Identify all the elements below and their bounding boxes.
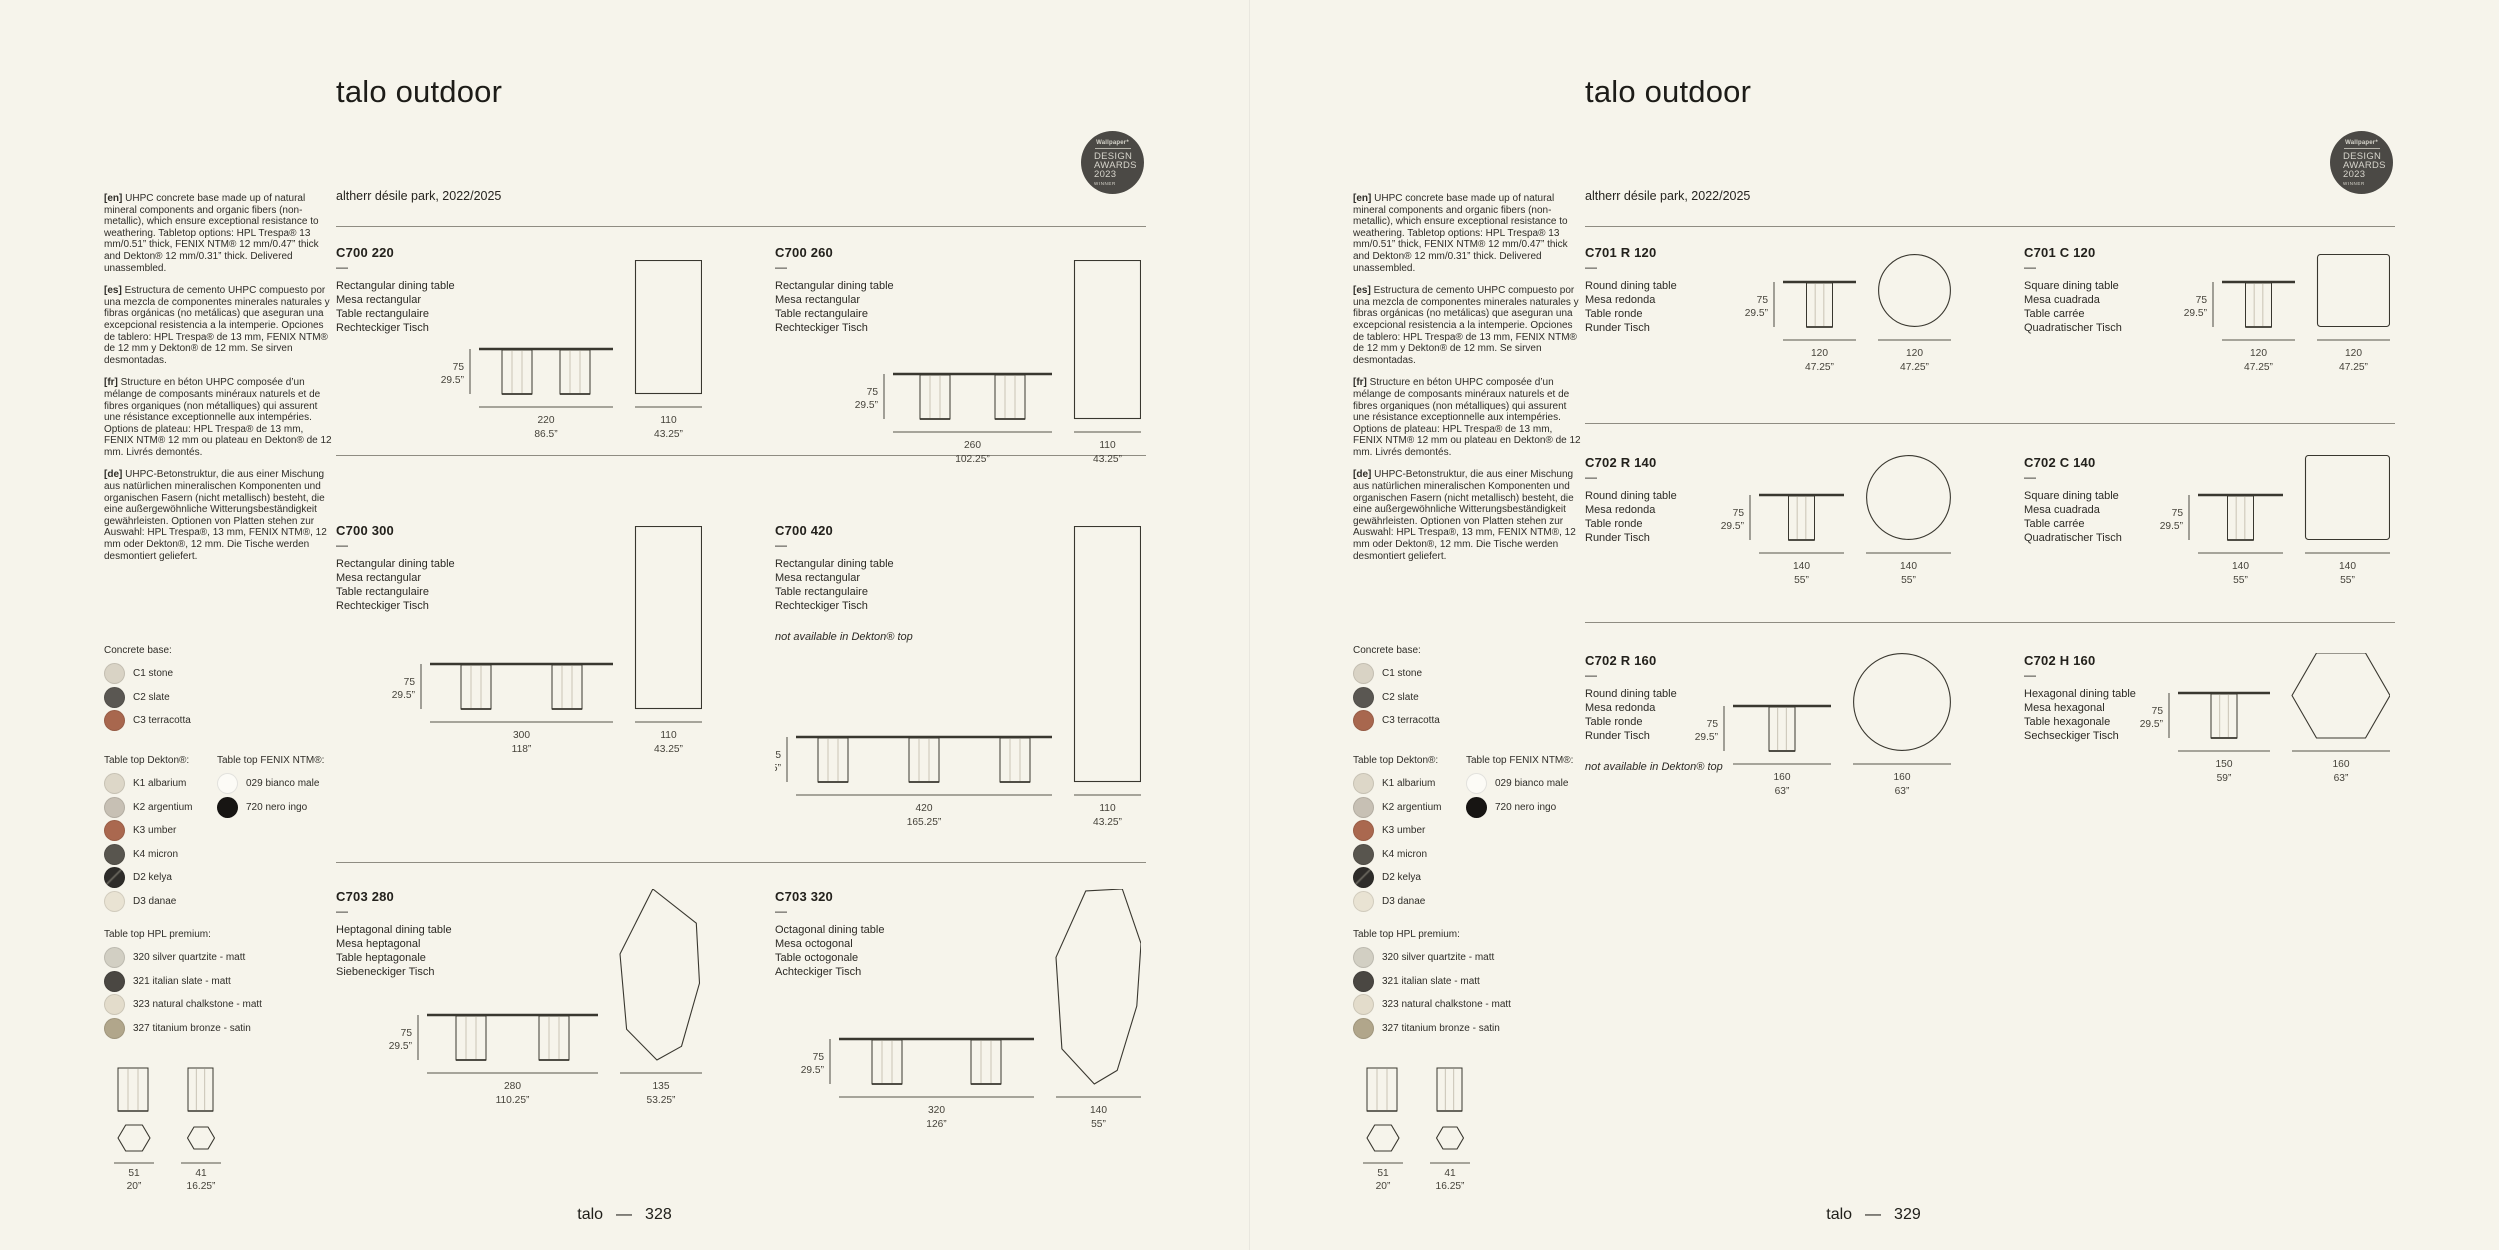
product-diagram: 7529.5”16063”16063” [1585, 653, 1951, 801]
dimension-label: 120 [2250, 348, 2267, 359]
footer-dash: — [1865, 1206, 1881, 1223]
product-diagram-wrap: 7529.5”12047.25”12047.25” [2024, 254, 2390, 382]
product-diagram: 7529.5”15059”16063” [2024, 653, 2390, 788]
product-diagram: 7529.5”14055”14055” [2024, 455, 2390, 590]
dimension-label: 280 [504, 1081, 521, 1092]
dimension-label: 220 [538, 415, 555, 426]
dimension-label: 102.25” [955, 454, 990, 465]
dimension-label: 260 [964, 440, 981, 451]
dimension-label: 29.5” [389, 1041, 413, 1052]
dimension-label: 63” [1895, 786, 1910, 797]
dimension-label: 110.25” [496, 1095, 530, 1106]
dimension-label: 150 [2216, 759, 2233, 770]
dimension-label: 29.5” [855, 400, 879, 411]
dimension-label: 43.25” [1093, 454, 1122, 465]
dimension-label: 47.25” [1805, 362, 1834, 373]
product-diagram: 7529.5”12047.25”12047.25” [1585, 254, 1951, 377]
dimension-label: 120 [2345, 348, 2362, 359]
product-diagram-wrap: 7529.5”14055”14055” [2024, 455, 2390, 595]
dimension-label: 86.5” [534, 429, 558, 440]
row-separator-line [336, 862, 1146, 863]
dimension-label: 29.5” [392, 690, 416, 701]
dimension-label: 47.25” [2339, 362, 2368, 373]
dimension-label: 29.5” [441, 375, 465, 386]
dimension-label: 55” [1091, 1119, 1106, 1130]
product-block: C703 320—Octagonal dining tableMesa octo… [775, 889, 1147, 980]
dimension-label: 120 [1811, 348, 1828, 359]
product-diagram-wrap: 7529.5”300118”11043.25” [336, 526, 702, 764]
product-diagram: 7529.5”260102.25”11043.25” [775, 260, 1141, 469]
dimension-label: 140 [2339, 561, 2356, 572]
dimension-label: 63” [2334, 773, 2349, 784]
dimension-label: 420 [916, 803, 933, 814]
dimension-label: 59” [2217, 773, 2232, 784]
page-footer: talo—329 [1249, 1206, 2498, 1224]
dimension-label: 110 [1099, 440, 1116, 451]
dimension-label: 55” [1794, 575, 1809, 586]
product-diagram: 7529.5”420165.25”11043.25” [775, 526, 1141, 832]
dimension-label: 29.5” [1721, 521, 1745, 532]
dimension-label: 75 [867, 387, 879, 398]
row-separator-line [1585, 622, 2395, 623]
dimension-label: 29.5” [2184, 308, 2208, 319]
products-area: C701 R 120—Round dining tableMesa redond… [1249, 0, 2498, 1250]
product-diagram-wrap: 7529.5”12047.25”12047.25” [1585, 254, 1951, 382]
product-diagram-wrap: 7529.5”420165.25”11043.25” [775, 526, 1141, 837]
dimension-label: 55” [2340, 575, 2355, 586]
dimension-label: 29.5” [2160, 521, 2184, 532]
product-diagram: 7529.5”320126”14055” [775, 889, 1141, 1134]
dimension-label: 75 [1733, 508, 1745, 519]
row-separator-line [1585, 423, 2395, 424]
product-diagram: 7529.5”300118”11043.25” [336, 526, 702, 759]
dimension-label: 160 [1774, 772, 1791, 783]
catalog-spread: talo outdoor Wallpaper* DESIGN AWARDS 20… [0, 0, 2499, 1250]
product-block: C701 C 120—Square dining tableMesa cuadr… [2024, 245, 2396, 336]
dimension-label: 43.25” [654, 744, 683, 755]
dimension-label: 160 [2333, 759, 2350, 770]
footer-page-number: 329 [1894, 1206, 1921, 1223]
products-area: C700 220—Rectangular dining tableMesa re… [0, 0, 1249, 1250]
dimension-label: 29.5” [1745, 308, 1769, 319]
product-block: C702 C 140—Square dining tableMesa cuadr… [2024, 455, 2396, 546]
dimension-label: 75 [1707, 719, 1719, 730]
product-block: C702 R 140—Round dining tableMesa redond… [1585, 455, 1957, 546]
product-diagram-wrap: 7529.5”260102.25”11043.25” [775, 260, 1141, 474]
dimension-label: 75 [775, 750, 781, 761]
dimension-label: 320 [928, 1105, 945, 1116]
dimension-label: 75 [2196, 295, 2208, 306]
dimension-label: 47.25” [1900, 362, 1929, 373]
dimension-label: 75 [453, 362, 465, 373]
dimension-label: 300 [513, 730, 530, 741]
dimension-label: 110 [660, 415, 677, 426]
dimension-label: 75 [813, 1052, 825, 1063]
dimension-label: 140 [1090, 1105, 1107, 1116]
dimension-label: 29.5” [1695, 732, 1719, 743]
dimension-label: 55” [1901, 575, 1916, 586]
product-block: C701 R 120—Round dining tableMesa redond… [1585, 245, 1957, 336]
footer-brand: talo [1826, 1206, 1852, 1223]
page-right: talo outdoor Wallpaper* DESIGN AWARDS 20… [1249, 0, 2498, 1250]
dimension-label: 75 [2152, 706, 2164, 717]
product-code: C700 220 [336, 245, 708, 260]
dimension-label: 75 [2172, 508, 2184, 519]
dimension-label: 53.25” [647, 1095, 676, 1106]
footer-page-number: 328 [645, 1206, 672, 1223]
product-diagram-wrap: 7529.5”15059”16063” [2024, 653, 2390, 793]
dimension-label: 29.5” [775, 763, 782, 774]
dimension-label: 140 [1793, 561, 1810, 572]
dimension-label: 140 [1900, 561, 1917, 572]
product-block: C702 H 160—Hexagonal dining tableMesa he… [2024, 653, 2396, 744]
product-diagram-wrap: 7529.5”14055”14055” [1585, 455, 1951, 595]
product-block: C702 R 160—Round dining tableMesa redond… [1585, 653, 1957, 773]
product-diagram: 7529.5”280110.25”13553.25” [336, 889, 702, 1110]
dimension-label: 47.25” [2244, 362, 2273, 373]
dimension-label: 160 [1894, 772, 1911, 783]
product-diagram-wrap: 7529.5”280110.25”13553.25” [336, 889, 702, 1115]
dimension-label: 135 [653, 1081, 670, 1092]
dimension-label: 110 [1099, 803, 1116, 814]
footer-dash: — [616, 1206, 632, 1223]
product-diagram: 7529.5”12047.25”12047.25” [2024, 254, 2390, 377]
product-block: C700 260—Rectangular dining tableMesa re… [775, 245, 1147, 336]
product-block: C700 300—Rectangular dining tableMesa re… [336, 523, 708, 614]
product-diagram: 7529.5”22086.5”11043.25” [336, 260, 702, 444]
dimension-label: 118” [512, 744, 532, 755]
page-footer: talo—328 [0, 1206, 1249, 1224]
dimension-label: 29.5” [801, 1065, 825, 1076]
product-diagram-wrap: 7529.5”16063”16063” [1585, 653, 1951, 806]
dimension-label: 29.5” [2140, 719, 2164, 730]
dimension-label: 110 [660, 730, 677, 741]
page-left: talo outdoor Wallpaper* DESIGN AWARDS 20… [0, 0, 1249, 1250]
product-diagram: 7529.5”14055”14055” [1585, 455, 1951, 590]
dimension-label: 75 [1757, 295, 1769, 306]
product-diagram-wrap: 7529.5”320126”14055” [775, 889, 1141, 1139]
product-block: C700 220—Rectangular dining tableMesa re… [336, 245, 708, 336]
dimension-label: 140 [2232, 561, 2249, 572]
dimension-label: 126” [926, 1119, 947, 1130]
product-block: C700 420—Rectangular dining tableMesa re… [775, 523, 1147, 643]
dimension-label: 55” [2233, 575, 2248, 586]
dimension-label: 63” [1775, 786, 1790, 797]
dimension-label: 43.25” [654, 429, 683, 440]
spread-gutter [1249, 0, 1250, 1250]
product-diagram-wrap: 7529.5”22086.5”11043.25” [336, 260, 702, 449]
dimension-label: 75 [404, 677, 416, 688]
dimension-label: 165.25” [907, 817, 942, 828]
footer-brand: talo [577, 1206, 603, 1223]
dimension-label: 120 [1906, 348, 1923, 359]
product-code: C700 260 [775, 245, 1147, 260]
dimension-label: 43.25” [1093, 817, 1122, 828]
product-block: C703 280—Heptagonal dining tableMesa hep… [336, 889, 708, 980]
dimension-label: 75 [401, 1028, 413, 1039]
